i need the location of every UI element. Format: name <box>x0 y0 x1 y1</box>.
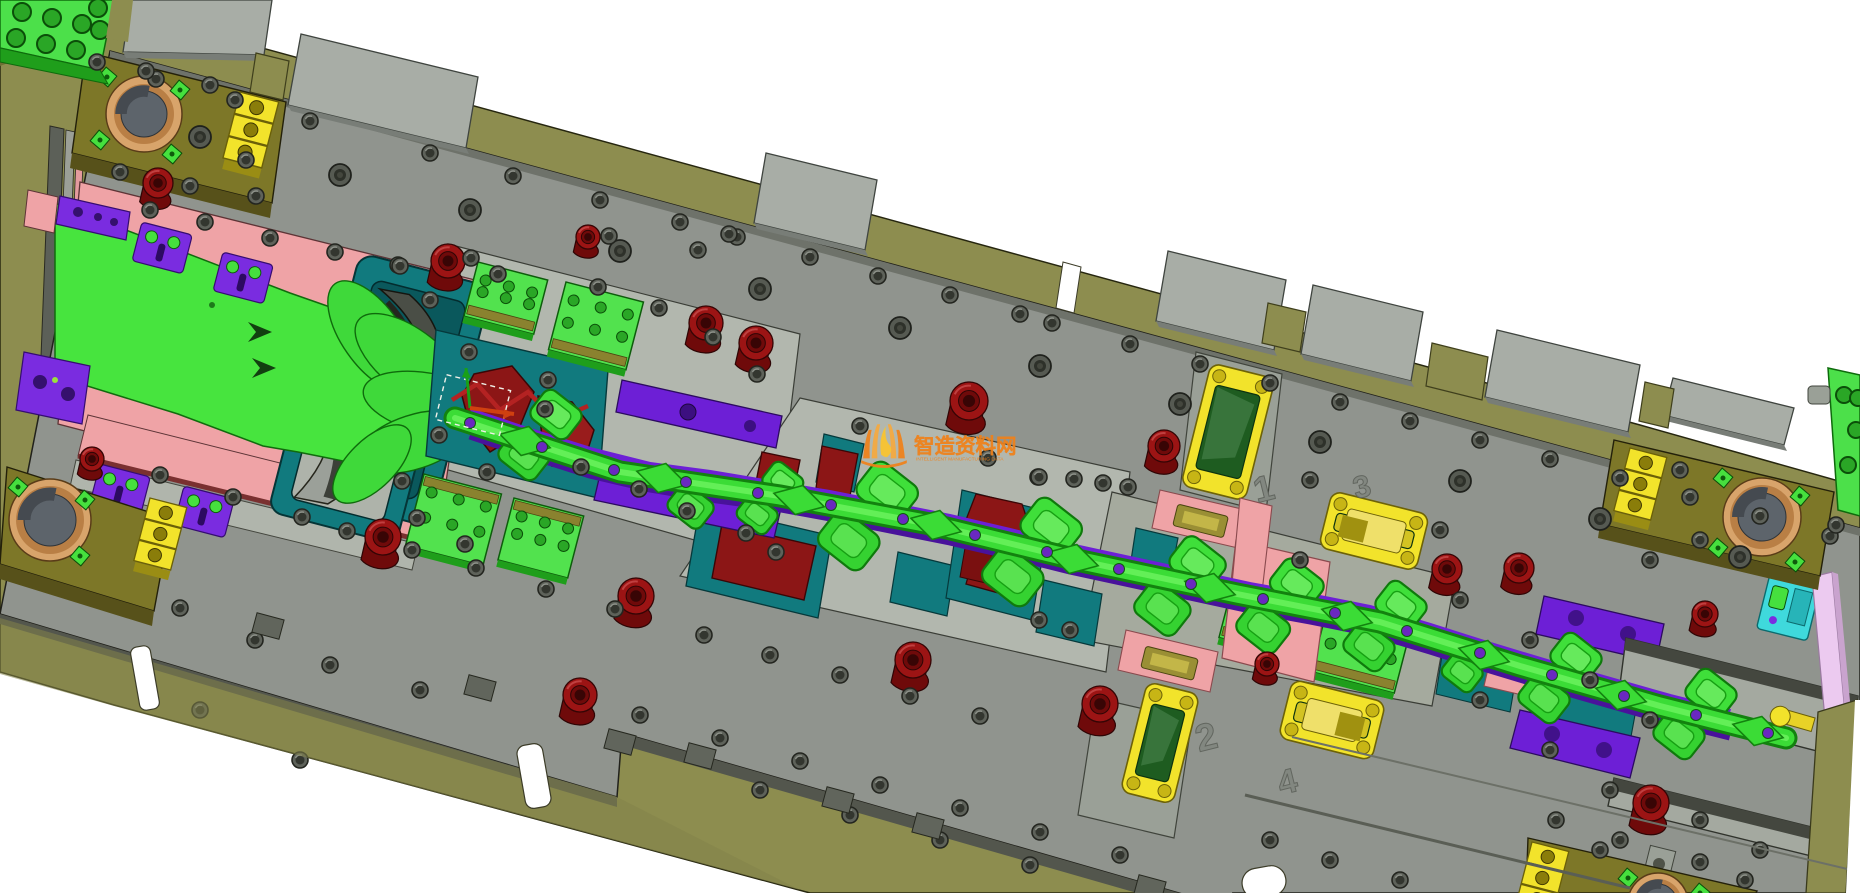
svg-text:智造资料网: 智造资料网 <box>914 434 1017 458</box>
svg-text:INTELLIGENT MANUFACTURING DATA: INTELLIGENT MANUFACTURING DATA <box>916 457 1004 463</box>
